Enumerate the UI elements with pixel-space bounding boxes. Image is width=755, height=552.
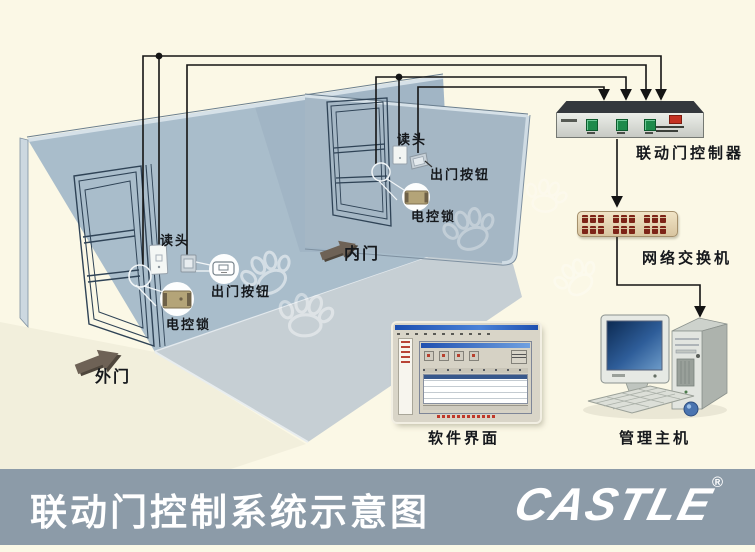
port-group xyxy=(644,215,670,224)
network-switch-device xyxy=(577,211,678,237)
controller-button-caption xyxy=(645,132,653,134)
dialog-toolbar xyxy=(424,351,479,361)
controller-green-button xyxy=(586,119,598,131)
outer-lock-label: 电控锁 xyxy=(166,314,211,333)
inner-door-label: 内门 xyxy=(344,240,380,264)
dialog-filter-row xyxy=(423,368,528,373)
port-group xyxy=(613,215,639,224)
toolbar-button xyxy=(424,351,434,361)
software-inner-dialog xyxy=(419,341,532,414)
controller-front-panel xyxy=(556,113,704,138)
outer-reader-label: 读头 xyxy=(160,230,190,249)
outer-lock-callout xyxy=(160,282,194,316)
controller-green-button xyxy=(616,119,628,131)
toolbar-button xyxy=(439,351,449,361)
inner-exit-button-label: 出门按钮 xyxy=(430,164,490,183)
interlock-controller-device xyxy=(556,101,704,139)
outer-exit-button-callout xyxy=(209,254,239,284)
diagram-canvas: 读头 出门按钮 电控锁 外门 读头 出门按钮 电控锁 内门 联动门控制器 网络交… xyxy=(0,0,755,552)
wire-junction-dot xyxy=(396,74,403,81)
switch-label: 网络交换机 xyxy=(642,247,732,268)
software-tree-panel xyxy=(398,338,413,415)
management-host-computer xyxy=(583,315,727,419)
software-menubar xyxy=(397,332,536,336)
controller-label: 联动门控制器 xyxy=(636,142,744,163)
outer-door-reader-device xyxy=(149,245,167,275)
port-group xyxy=(582,215,608,224)
inner-door-reader-device xyxy=(393,146,407,164)
outer-door-exit-button-device xyxy=(181,255,196,272)
outer-door-label: 外门 xyxy=(95,363,131,387)
table-header-band xyxy=(424,375,527,379)
castle-logo: CASTLE xyxy=(509,477,718,531)
dialog-titlebar xyxy=(421,343,530,348)
inner-reader-label: 读头 xyxy=(397,129,427,148)
watermark-shape xyxy=(548,253,605,305)
controller-model-text xyxy=(656,130,678,132)
wire-junction-dot xyxy=(156,53,163,60)
inner-lock-label: 电控锁 xyxy=(411,206,456,225)
controller-button-caption xyxy=(587,132,595,134)
toolbar-button xyxy=(469,351,479,361)
port-group xyxy=(644,226,670,235)
software-footer-red-text xyxy=(437,415,495,418)
dialog-statusbar xyxy=(423,405,528,410)
software-screenshot xyxy=(393,323,540,422)
registered-trademark-icon: ® xyxy=(712,474,723,491)
controller-top-face xyxy=(556,101,704,113)
toolbar-button xyxy=(454,351,464,361)
controller-brand-mark xyxy=(561,119,577,122)
port-group xyxy=(613,226,639,235)
controller-red-indicator xyxy=(669,115,682,124)
dialog-record-table xyxy=(423,374,528,404)
footer-bar: 联动门控制系统示意图 CASTLE ® xyxy=(0,469,755,545)
software-label: 软件界面 xyxy=(428,427,500,448)
dialog-side-button xyxy=(511,350,527,364)
diagram-title: 联动门控制系统示意图 xyxy=(30,482,430,536)
outer-exit-button-label: 出门按钮 xyxy=(211,281,271,300)
host-label: 管理主机 xyxy=(619,427,691,448)
controller-button-caption xyxy=(617,132,625,134)
controller-model-text xyxy=(656,126,684,128)
controller-green-button xyxy=(644,119,656,131)
port-group xyxy=(582,226,608,235)
watermark-shape xyxy=(519,173,572,220)
switch-port-grid xyxy=(578,212,677,235)
software-window-titlebar xyxy=(395,325,538,330)
